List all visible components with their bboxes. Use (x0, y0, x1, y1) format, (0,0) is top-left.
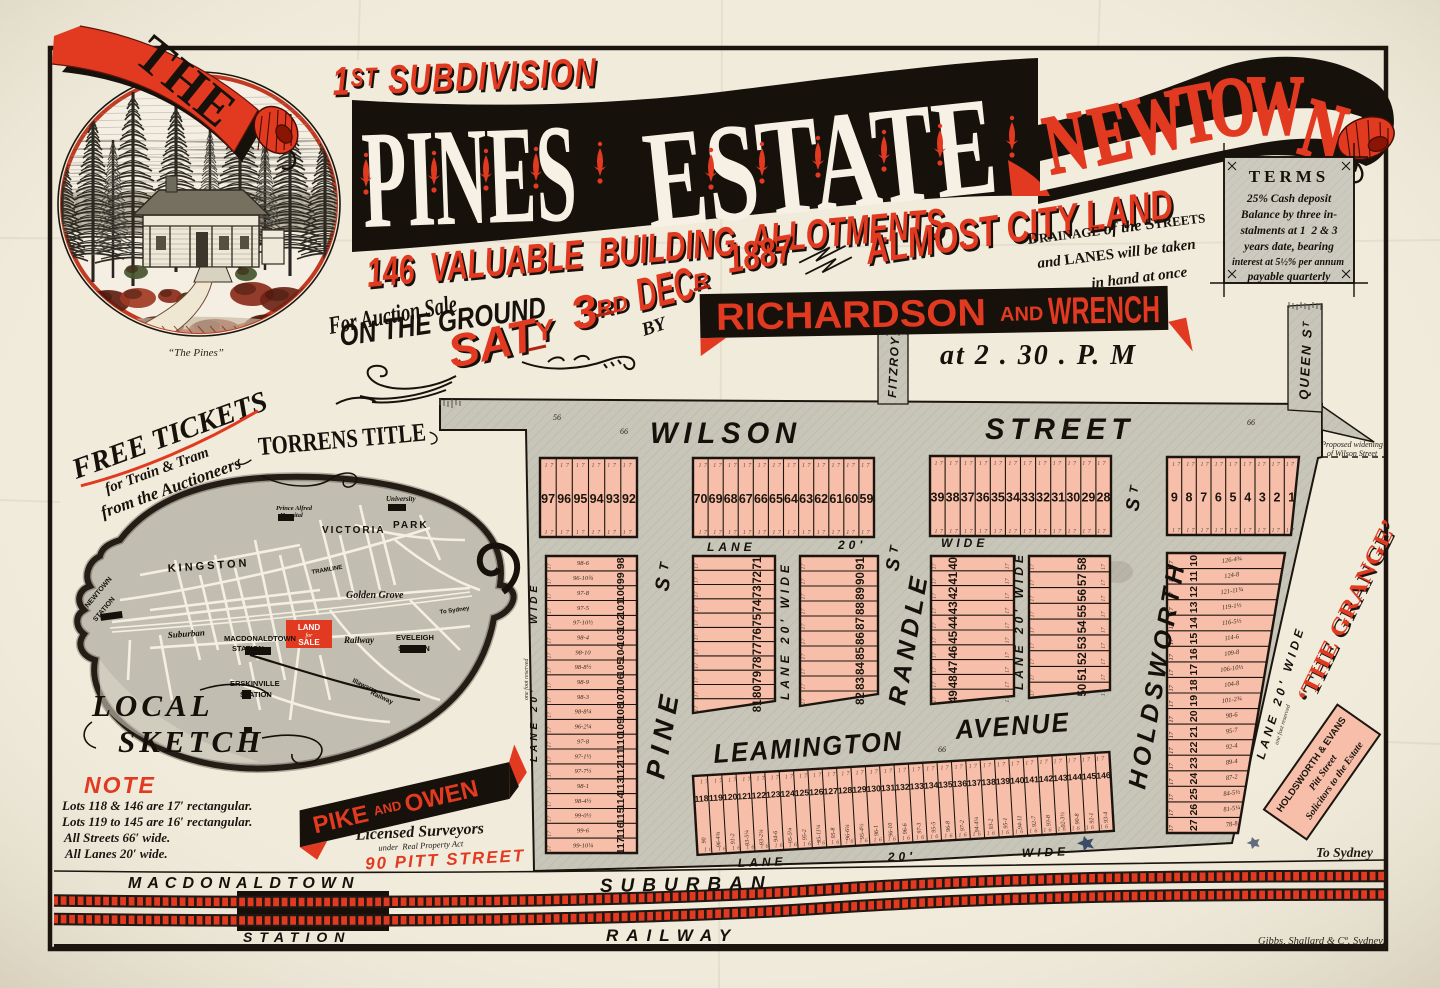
svg-text:23: 23 (1188, 757, 1200, 769)
svg-text:87: 87 (855, 617, 867, 630)
svg-text:All Streets 66′ wide.: All Streets 66′ wide. (63, 830, 170, 845)
svg-text:32: 32 (1036, 491, 1050, 505)
svg-text:37: 37 (961, 491, 975, 505)
svg-text:17: 17 (1101, 579, 1107, 586)
svg-text:111: 111 (615, 748, 627, 765)
svg-text:86: 86 (855, 632, 867, 645)
svg-text:100: 100 (615, 584, 627, 602)
svg-text:17: 17 (547, 622, 553, 629)
svg-text:21: 21 (1188, 726, 1200, 738)
svg-text:17: 17 (547, 815, 553, 822)
svg-text:35: 35 (991, 491, 1005, 505)
svg-text:97-1½: 97-1½ (575, 753, 592, 760)
svg-text:SALE: SALE (298, 638, 320, 647)
svg-text:64: 64 (784, 492, 798, 506)
svg-text:95: 95 (573, 492, 587, 506)
svg-text:95-1: 95-1 (1003, 817, 1010, 828)
svg-text:99: 99 (615, 572, 627, 584)
svg-text:53: 53 (1077, 636, 1089, 649)
svg-text:47: 47 (948, 661, 960, 674)
svg-text:24: 24 (1188, 773, 1200, 785)
svg-text:17: 17 (932, 651, 938, 658)
svg-text:20′: 20′ (837, 538, 866, 552)
svg-text:114: 114 (615, 792, 627, 809)
svg-text:127: 127 (823, 786, 838, 797)
svg-text:96-6: 96-6 (902, 823, 909, 834)
svg-text:17: 17 (547, 800, 553, 807)
svg-text:17: 17 (801, 593, 807, 600)
svg-text:Lots 119 to 145 are 16′ rectan: Lots 119 to 145 are 16′ rectangular. (61, 814, 252, 829)
svg-text:58: 58 (1077, 557, 1089, 570)
svg-text:144: 144 (1067, 772, 1082, 783)
svg-text:17: 17 (801, 623, 807, 630)
svg-text:17: 17 (801, 653, 807, 660)
svg-text:95-5¼: 95-5¼ (787, 827, 794, 843)
svg-text:82: 82 (855, 692, 867, 705)
svg-text:75: 75 (752, 613, 764, 626)
svg-text:25: 25 (1188, 788, 1200, 800)
svg-text:95-8: 95-8 (831, 827, 838, 838)
svg-text:68: 68 (724, 492, 738, 506)
svg-text:48: 48 (948, 675, 960, 688)
svg-text:42: 42 (948, 587, 960, 600)
svg-text:STATION: STATION (398, 644, 430, 653)
svg-text:92-7: 92-7 (1031, 815, 1038, 827)
svg-text:13: 13 (1188, 601, 1200, 613)
svg-text:44: 44 (948, 616, 960, 629)
svg-text:17: 17 (1168, 809, 1175, 816)
svg-text:117: 117 (615, 837, 627, 854)
svg-text:11: 11 (1188, 571, 1200, 582)
svg-text:RICHARDSON: RICHARDSON (716, 292, 987, 339)
svg-text:76: 76 (752, 628, 764, 641)
svg-text:22: 22 (1188, 741, 1200, 753)
svg-text:VICTORIA: VICTORIA (322, 525, 386, 536)
svg-text:Gibbs, Shallard & Cº. Sydney.: Gibbs, Shallard & Cº. Sydney. (1258, 936, 1385, 947)
svg-text:17: 17 (1005, 666, 1011, 673)
svg-text:106: 106 (615, 673, 627, 691)
svg-text:17: 17 (547, 755, 553, 762)
svg-text:17: 17 (801, 608, 807, 615)
svg-text:16: 16 (1188, 648, 1200, 660)
svg-text:67: 67 (739, 492, 753, 506)
svg-text:81: 81 (752, 699, 764, 712)
svg-text:LAND: LAND (298, 623, 320, 632)
svg-text:120: 120 (723, 791, 738, 802)
svg-text:17: 17 (694, 605, 700, 612)
svg-text:14: 14 (1188, 617, 1200, 629)
svg-text:17: 17 (1168, 762, 1175, 769)
svg-text:97-2: 97-2 (960, 820, 967, 831)
svg-text:40: 40 (948, 557, 960, 570)
svg-text:90-8: 90-8 (1075, 813, 1082, 824)
svg-text:130: 130 (866, 783, 881, 794)
svg-text:51: 51 (1077, 667, 1089, 680)
svg-text:74: 74 (752, 599, 764, 612)
svg-text:80: 80 (752, 685, 764, 698)
svg-text:57: 57 (1077, 573, 1089, 586)
svg-text:33: 33 (1021, 491, 1035, 505)
svg-text:3: 3 (1259, 491, 1266, 505)
svg-text:17: 17 (1030, 674, 1036, 681)
svg-text:17: 17 (932, 622, 938, 629)
svg-text:17: 17 (1168, 793, 1175, 800)
svg-text:97-10½: 97-10½ (573, 620, 593, 627)
svg-text:97-3: 97-3 (917, 822, 924, 833)
svg-text:Hospital: Hospital (279, 512, 303, 519)
svg-text:17: 17 (694, 619, 700, 626)
svg-text:17: 17 (694, 633, 700, 640)
svg-text:116: 116 (615, 822, 627, 839)
svg-text:17: 17 (801, 683, 807, 690)
svg-text:98: 98 (615, 557, 627, 569)
svg-text:91-2: 91-2 (730, 833, 737, 844)
svg-text:66: 66 (754, 492, 768, 506)
svg-text:98-4: 98-4 (577, 635, 590, 642)
svg-text:17: 17 (1101, 626, 1107, 633)
svg-text:70: 70 (694, 492, 708, 506)
svg-text:142: 142 (1039, 773, 1054, 784)
svg-text:92-3½: 92-3½ (1059, 811, 1067, 827)
svg-text:Balance by three in-: Balance by three in- (1240, 209, 1337, 221)
svg-text:98-8½: 98-8½ (575, 664, 592, 671)
svg-text:113: 113 (615, 778, 627, 795)
svg-text:56: 56 (553, 413, 561, 422)
svg-text:96-10¾: 96-10¾ (573, 575, 593, 582)
svg-text:17: 17 (1005, 562, 1011, 569)
svg-text:41: 41 (948, 571, 960, 584)
svg-text:95-5: 95-5 (931, 822, 938, 833)
svg-text:17: 17 (547, 696, 553, 703)
svg-text:93: 93 (606, 492, 620, 506)
svg-text:126: 126 (809, 787, 824, 798)
svg-text:17: 17 (801, 578, 807, 585)
svg-text:85: 85 (855, 647, 867, 660)
svg-text:WIDE: WIDE (941, 536, 988, 550)
svg-text:84: 84 (855, 662, 867, 675)
svg-text:“The Pines”: “The Pines” (168, 347, 224, 359)
svg-text:TERMS: TERMS (1249, 167, 1329, 186)
svg-text:STATION: STATION (240, 690, 272, 699)
svg-text:MACDONALDTOWN: MACDONALDTOWN (224, 634, 296, 643)
svg-text:17: 17 (1168, 778, 1175, 785)
svg-text:17: 17 (547, 666, 553, 673)
svg-text:17: 17 (1168, 747, 1175, 754)
svg-text:26: 26 (1188, 804, 1200, 816)
svg-text:20: 20 (1188, 710, 1200, 722)
svg-text:94-4¼: 94-4¼ (973, 816, 981, 832)
svg-text:36: 36 (976, 491, 990, 505)
svg-text:17: 17 (801, 698, 807, 705)
svg-text:17: 17 (547, 711, 553, 718)
svg-text:17: 17 (694, 562, 700, 569)
svg-text:92: 92 (622, 492, 636, 506)
svg-text:LANE: LANE (707, 540, 756, 554)
svg-text:72: 72 (752, 571, 764, 584)
svg-text:93-4: 93-4 (1102, 812, 1110, 823)
svg-text:Prince Alfred: Prince Alfred (276, 505, 313, 512)
svg-text:17: 17 (1005, 607, 1011, 614)
svg-text:17: 17 (547, 607, 553, 614)
svg-text:17: 17 (932, 636, 938, 643)
svg-text:134: 134 (924, 780, 939, 791)
svg-text:121: 121 (737, 791, 752, 802)
svg-text:WIDE: WIDE (529, 582, 540, 624)
svg-text:17: 17 (1168, 715, 1175, 722)
svg-text:17: 17 (801, 668, 807, 675)
svg-text:90: 90 (701, 837, 707, 843)
svg-text:17: 17 (1005, 577, 1011, 584)
svg-text:NOTE: NOTE (84, 772, 156, 798)
svg-text:94-6: 94-6 (772, 831, 780, 842)
svg-text:To Sydney: To Sydney (1316, 845, 1374, 860)
svg-text:1: 1 (1288, 491, 1295, 505)
svg-text:109: 109 (615, 718, 627, 736)
svg-text:WRENCH: WRENCH (1048, 289, 1161, 333)
svg-text:112: 112 (615, 763, 627, 780)
svg-text:98-6: 98-6 (577, 560, 590, 567)
svg-text:62: 62 (814, 492, 828, 506)
svg-text:99-6: 99-6 (577, 828, 590, 835)
svg-text:97: 97 (541, 492, 555, 506)
svg-text:97-8: 97-8 (577, 590, 590, 597)
svg-text:WIDE: WIDE (1022, 844, 1070, 860)
svg-text:EVELEIGH: EVELEIGH (396, 633, 434, 642)
svg-text:17: 17 (932, 681, 938, 688)
svg-text:17: 17 (1005, 592, 1011, 599)
svg-text:124: 124 (780, 788, 795, 799)
svg-text:131: 131 (881, 782, 896, 793)
svg-text:payable quarterly: payable quarterly (1247, 271, 1332, 283)
svg-text:98-3: 98-3 (577, 694, 590, 701)
svg-text:SUBURBAN: SUBURBAN (600, 873, 773, 897)
svg-text:98-4½: 98-4½ (575, 798, 592, 805)
svg-text:60: 60 (844, 492, 858, 506)
svg-text:66: 66 (1063, 423, 1071, 432)
svg-text:years date, bearing: years date, bearing (1242, 241, 1334, 253)
svg-text:39: 39 (931, 491, 945, 505)
svg-text:Railway: Railway (343, 635, 375, 645)
svg-text:7: 7 (1200, 491, 1207, 505)
svg-text:Lots 118 & 146 are 17′ rectang: Lots 118 & 146 are 17′ rectangular. (61, 798, 252, 813)
svg-text:93-5¼: 93-5¼ (744, 830, 751, 846)
svg-text:LOCAL: LOCAL (91, 688, 214, 723)
svg-text:5: 5 (1230, 491, 1237, 505)
svg-text:143: 143 (1053, 772, 1068, 783)
svg-text:96-8: 96-8 (945, 821, 952, 832)
svg-text:LANE 20′: LANE 20′ (529, 686, 540, 762)
svg-text:STREET: STREET (985, 413, 1135, 446)
svg-text:17: 17 (547, 741, 553, 748)
svg-text:17: 17 (1005, 636, 1011, 643)
svg-text:139: 139 (996, 776, 1011, 787)
svg-text:66: 66 (938, 745, 946, 754)
svg-text:17: 17 (547, 830, 553, 837)
svg-text:49: 49 (948, 690, 960, 703)
svg-text:17: 17 (1030, 642, 1036, 649)
svg-text:56: 56 (1077, 589, 1089, 602)
svg-text:99-10¼: 99-10¼ (573, 842, 593, 849)
svg-text:17: 17 (1030, 610, 1036, 617)
svg-text:78: 78 (752, 656, 764, 669)
svg-text:W: W (1247, 58, 1304, 152)
svg-text:98-8¼: 98-8¼ (575, 709, 592, 716)
svg-text:17: 17 (1101, 674, 1107, 681)
svg-text:132: 132 (895, 782, 910, 793)
svg-text:93-2: 93-2 (988, 818, 995, 829)
svg-text:17: 17 (801, 638, 807, 645)
svg-text:Golden Grove: Golden Grove (346, 590, 404, 601)
svg-text:63: 63 (799, 492, 813, 506)
svg-text:138: 138 (981, 777, 996, 788)
svg-text:61: 61 (829, 492, 843, 506)
svg-text:108: 108 (615, 703, 627, 721)
svg-text:STATION: STATION (232, 644, 264, 653)
svg-text:17: 17 (1005, 622, 1011, 629)
svg-text:66: 66 (620, 427, 628, 436)
svg-text:AND: AND (1000, 303, 1044, 326)
svg-text:140: 140 (1010, 775, 1025, 786)
svg-text:77: 77 (752, 642, 764, 655)
svg-text:17: 17 (1030, 658, 1036, 665)
svg-text:71: 71 (752, 556, 764, 569)
svg-text:27: 27 (1188, 819, 1200, 831)
svg-text:17: 17 (1101, 595, 1107, 602)
svg-text:17: 17 (547, 637, 553, 644)
svg-text:17: 17 (547, 562, 553, 569)
svg-text:17: 17 (547, 845, 553, 852)
svg-text:55: 55 (1077, 604, 1089, 617)
svg-text:97-5: 97-5 (577, 605, 590, 612)
svg-text:95-4½: 95-4½ (858, 823, 866, 839)
svg-text:17: 17 (1188, 664, 1200, 676)
svg-text:110: 110 (615, 733, 627, 750)
svg-text:98-10: 98-10 (575, 649, 591, 656)
svg-text:94: 94 (590, 492, 604, 506)
svg-text:69: 69 (709, 492, 723, 506)
svg-text:17: 17 (1005, 681, 1011, 688)
svg-text:38: 38 (946, 491, 960, 505)
svg-text:18: 18 (1188, 679, 1200, 691)
svg-text:59: 59 (860, 492, 874, 506)
svg-text:stalments at 1 2 & 3: stalments at 1 2 & 3 (1239, 225, 1337, 237)
svg-text:17: 17 (1005, 696, 1011, 703)
svg-text:118: 118 (694, 793, 709, 804)
svg-text:17: 17 (694, 662, 700, 669)
svg-text:89: 89 (855, 587, 867, 600)
svg-text:122: 122 (751, 790, 766, 801)
svg-text:17: 17 (694, 690, 700, 697)
svg-text:17: 17 (932, 607, 938, 614)
svg-text:96-6¼: 96-6¼ (845, 824, 852, 840)
svg-text:17: 17 (932, 666, 938, 673)
svg-text:31: 31 (1051, 491, 1065, 505)
svg-text:34: 34 (1006, 491, 1020, 505)
svg-text:66: 66 (1247, 418, 1255, 427)
svg-text:17: 17 (1030, 689, 1036, 696)
svg-text:93-8: 93-8 (1046, 815, 1053, 826)
svg-text:96-4¾: 96-4¾ (715, 831, 723, 847)
svg-text:17: 17 (1030, 563, 1036, 570)
svg-text:19: 19 (1188, 695, 1200, 707)
svg-text:96-1: 96-1 (874, 825, 881, 836)
svg-text:97-8: 97-8 (577, 738, 590, 745)
svg-text:17: 17 (1101, 689, 1107, 696)
svg-text:17: 17 (547, 770, 553, 777)
svg-text:73: 73 (752, 585, 764, 598)
svg-text:93-2¼: 93-2¼ (759, 829, 766, 845)
svg-text:17: 17 (1168, 824, 1175, 831)
svg-text:2: 2 (1274, 491, 1281, 505)
svg-text:RAILWAY: RAILWAY (606, 926, 738, 945)
svg-text:125: 125 (794, 787, 809, 798)
svg-text:17: 17 (932, 696, 938, 703)
svg-text:17: 17 (547, 726, 553, 733)
svg-text:University: University (386, 495, 416, 503)
svg-text:Proposed widening: Proposed widening (1320, 440, 1383, 449)
svg-text:17: 17 (694, 705, 700, 712)
svg-text:SKETCH: SKETCH (118, 724, 264, 759)
svg-text:17: 17 (801, 563, 807, 570)
svg-text:PARK: PARK (393, 520, 429, 531)
svg-text:128: 128 (838, 785, 853, 796)
svg-text:88: 88 (855, 602, 867, 615)
svg-text:17: 17 (932, 592, 938, 599)
svg-text:17: 17 (694, 591, 700, 598)
svg-text:interest at 5½% per annum: interest at 5½% per annum (1232, 257, 1344, 268)
svg-text:79: 79 (752, 671, 764, 684)
svg-text:123: 123 (766, 789, 781, 800)
svg-text:136: 136 (952, 778, 967, 789)
svg-text:4: 4 (1244, 491, 1251, 505)
svg-text:WILSON: WILSON (650, 417, 802, 450)
svg-text:17: 17 (547, 652, 553, 659)
svg-text:141: 141 (1024, 774, 1039, 785)
svg-text:MACDONALDTOWN: MACDONALDTOWN (128, 875, 359, 892)
svg-text:98-9: 98-9 (577, 679, 590, 686)
svg-text:17: 17 (694, 576, 700, 583)
svg-text:LANE 20′ WIDE: LANE 20′ WIDE (778, 561, 792, 700)
svg-text:30: 30 (1066, 491, 1080, 505)
svg-text:54: 54 (1077, 620, 1089, 633)
svg-text:9: 9 (1171, 491, 1178, 505)
svg-text:17: 17 (1005, 651, 1011, 658)
svg-text:52: 52 (1077, 652, 1089, 665)
svg-text:17: 17 (1168, 731, 1175, 738)
svg-text:12: 12 (1188, 586, 1200, 598)
svg-text:99-0½: 99-0½ (575, 813, 592, 820)
svg-text:17: 17 (547, 592, 553, 599)
svg-text:17: 17 (547, 785, 553, 792)
svg-text:17: 17 (1101, 642, 1107, 649)
svg-text:17: 17 (547, 577, 553, 584)
svg-text:17: 17 (1101, 610, 1107, 617)
svg-text:146: 146 (1096, 770, 1111, 781)
svg-text:17: 17 (1030, 595, 1036, 602)
svg-text:119: 119 (709, 792, 724, 803)
svg-text:50: 50 (1077, 684, 1089, 697)
svg-text:137: 137 (967, 777, 982, 788)
svg-text:135: 135 (938, 779, 953, 790)
svg-text:96: 96 (557, 492, 571, 506)
svg-text:129: 129 (852, 784, 867, 795)
svg-text:All Lanes 20′ wide.: All Lanes 20′ wide. (64, 846, 168, 861)
svg-text:25% Cash deposit: 25% Cash deposit (1246, 193, 1332, 205)
svg-text:15: 15 (1188, 633, 1200, 645)
svg-text:17: 17 (932, 562, 938, 569)
svg-text:17: 17 (694, 676, 700, 683)
svg-text:92-1: 92-1 (1089, 812, 1096, 823)
